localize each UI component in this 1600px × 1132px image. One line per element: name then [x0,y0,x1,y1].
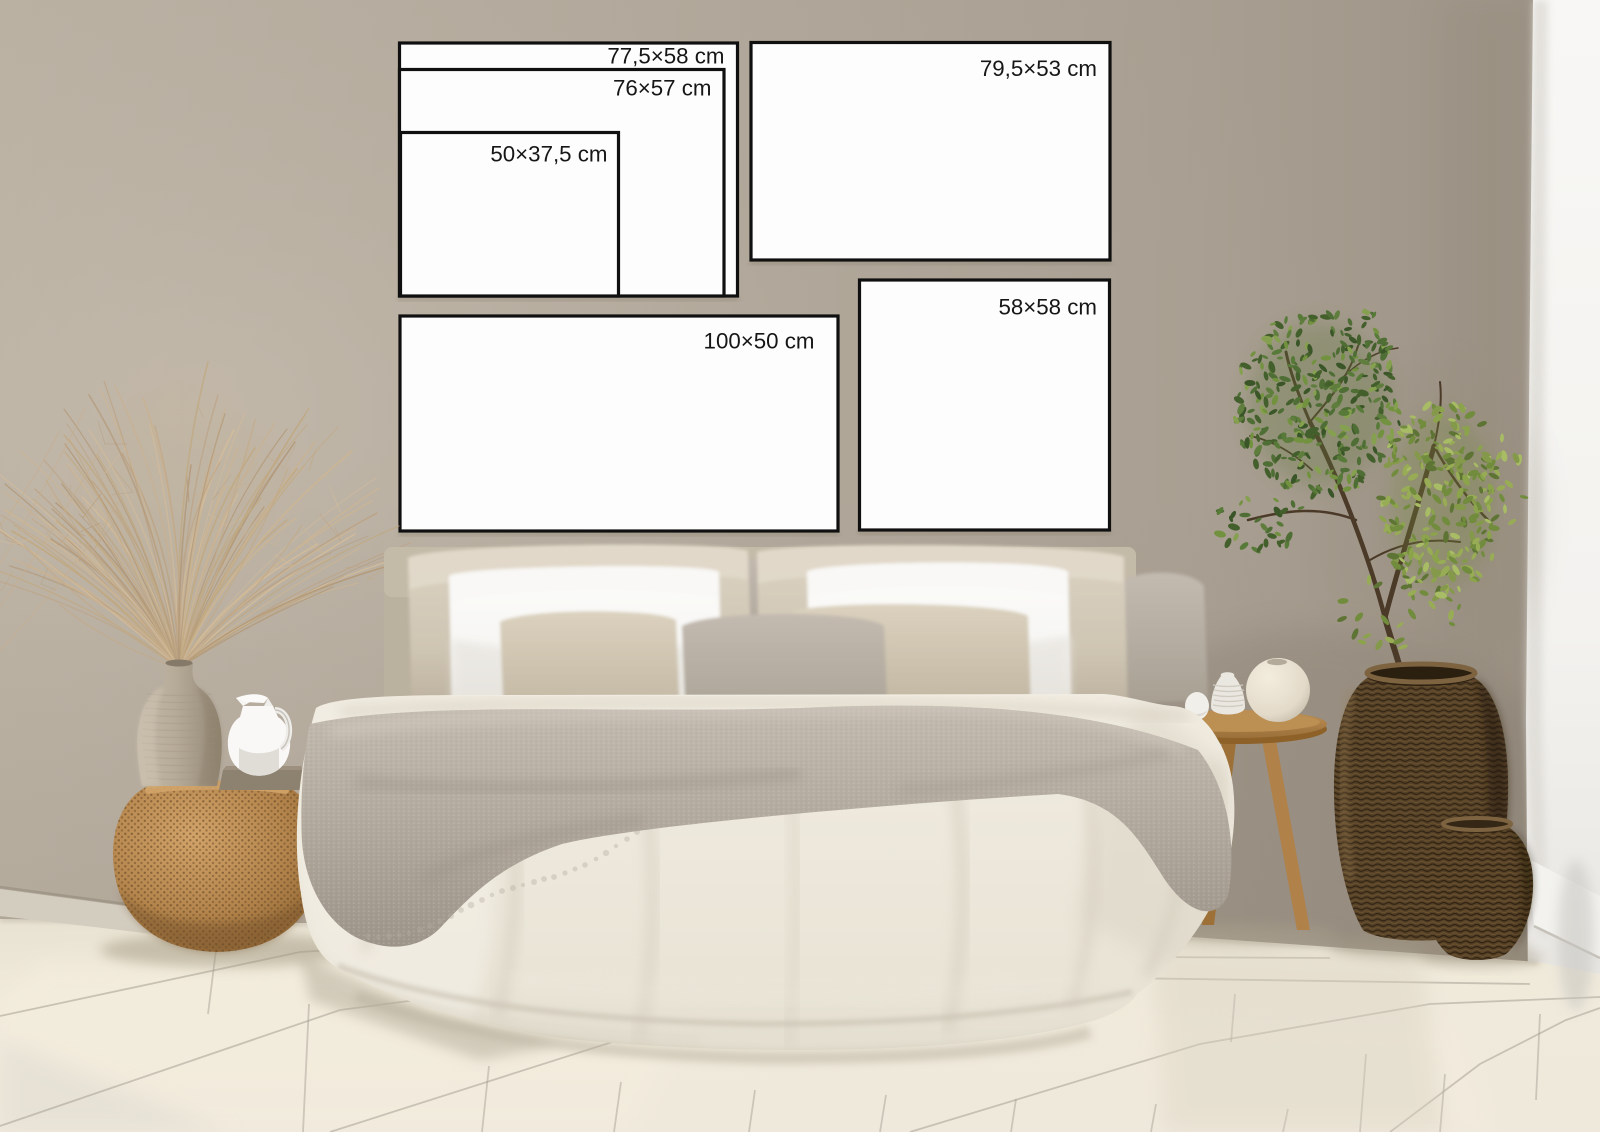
svg-text:79,5×53 cm: 79,5×53 cm [980,56,1097,81]
svg-text:76×57 cm: 76×57 cm [613,76,712,101]
svg-text:100×50 cm: 100×50 cm [704,329,815,354]
svg-text:50×37,5 cm: 50×37,5 cm [490,142,607,167]
svg-text:77,5×58 cm: 77,5×58 cm [607,44,724,69]
svg-text:58×58 cm: 58×58 cm [998,295,1097,320]
